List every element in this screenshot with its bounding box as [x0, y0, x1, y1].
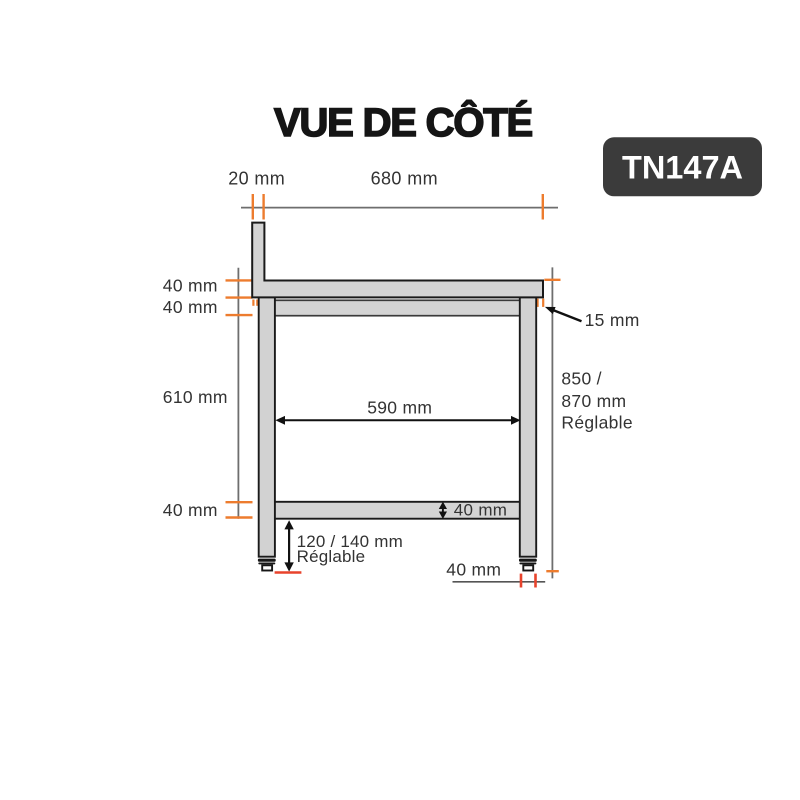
- svg-text:870 mm: 870 mm: [561, 391, 626, 411]
- svg-text:590 mm: 590 mm: [367, 397, 432, 417]
- svg-text:Réglable: Réglable: [561, 413, 632, 433]
- svg-text:TN147A: TN147A: [622, 150, 743, 186]
- svg-text:40 mm: 40 mm: [163, 500, 218, 520]
- svg-text:20 mm: 20 mm: [228, 169, 285, 189]
- svg-text:40 mm: 40 mm: [446, 560, 501, 580]
- svg-text:40 mm: 40 mm: [454, 501, 507, 520]
- svg-text:850 /: 850 /: [561, 369, 601, 389]
- svg-text:Réglable: Réglable: [297, 547, 366, 566]
- svg-text:680 mm: 680 mm: [371, 169, 438, 189]
- svg-text:15 mm: 15 mm: [585, 310, 640, 330]
- svg-text:610 mm: 610 mm: [163, 387, 228, 407]
- svg-text:40 mm: 40 mm: [163, 297, 218, 317]
- svg-text:40 mm: 40 mm: [163, 276, 218, 296]
- svg-text:VUE DE CÔTÉ: VUE DE CÔTÉ: [274, 99, 532, 145]
